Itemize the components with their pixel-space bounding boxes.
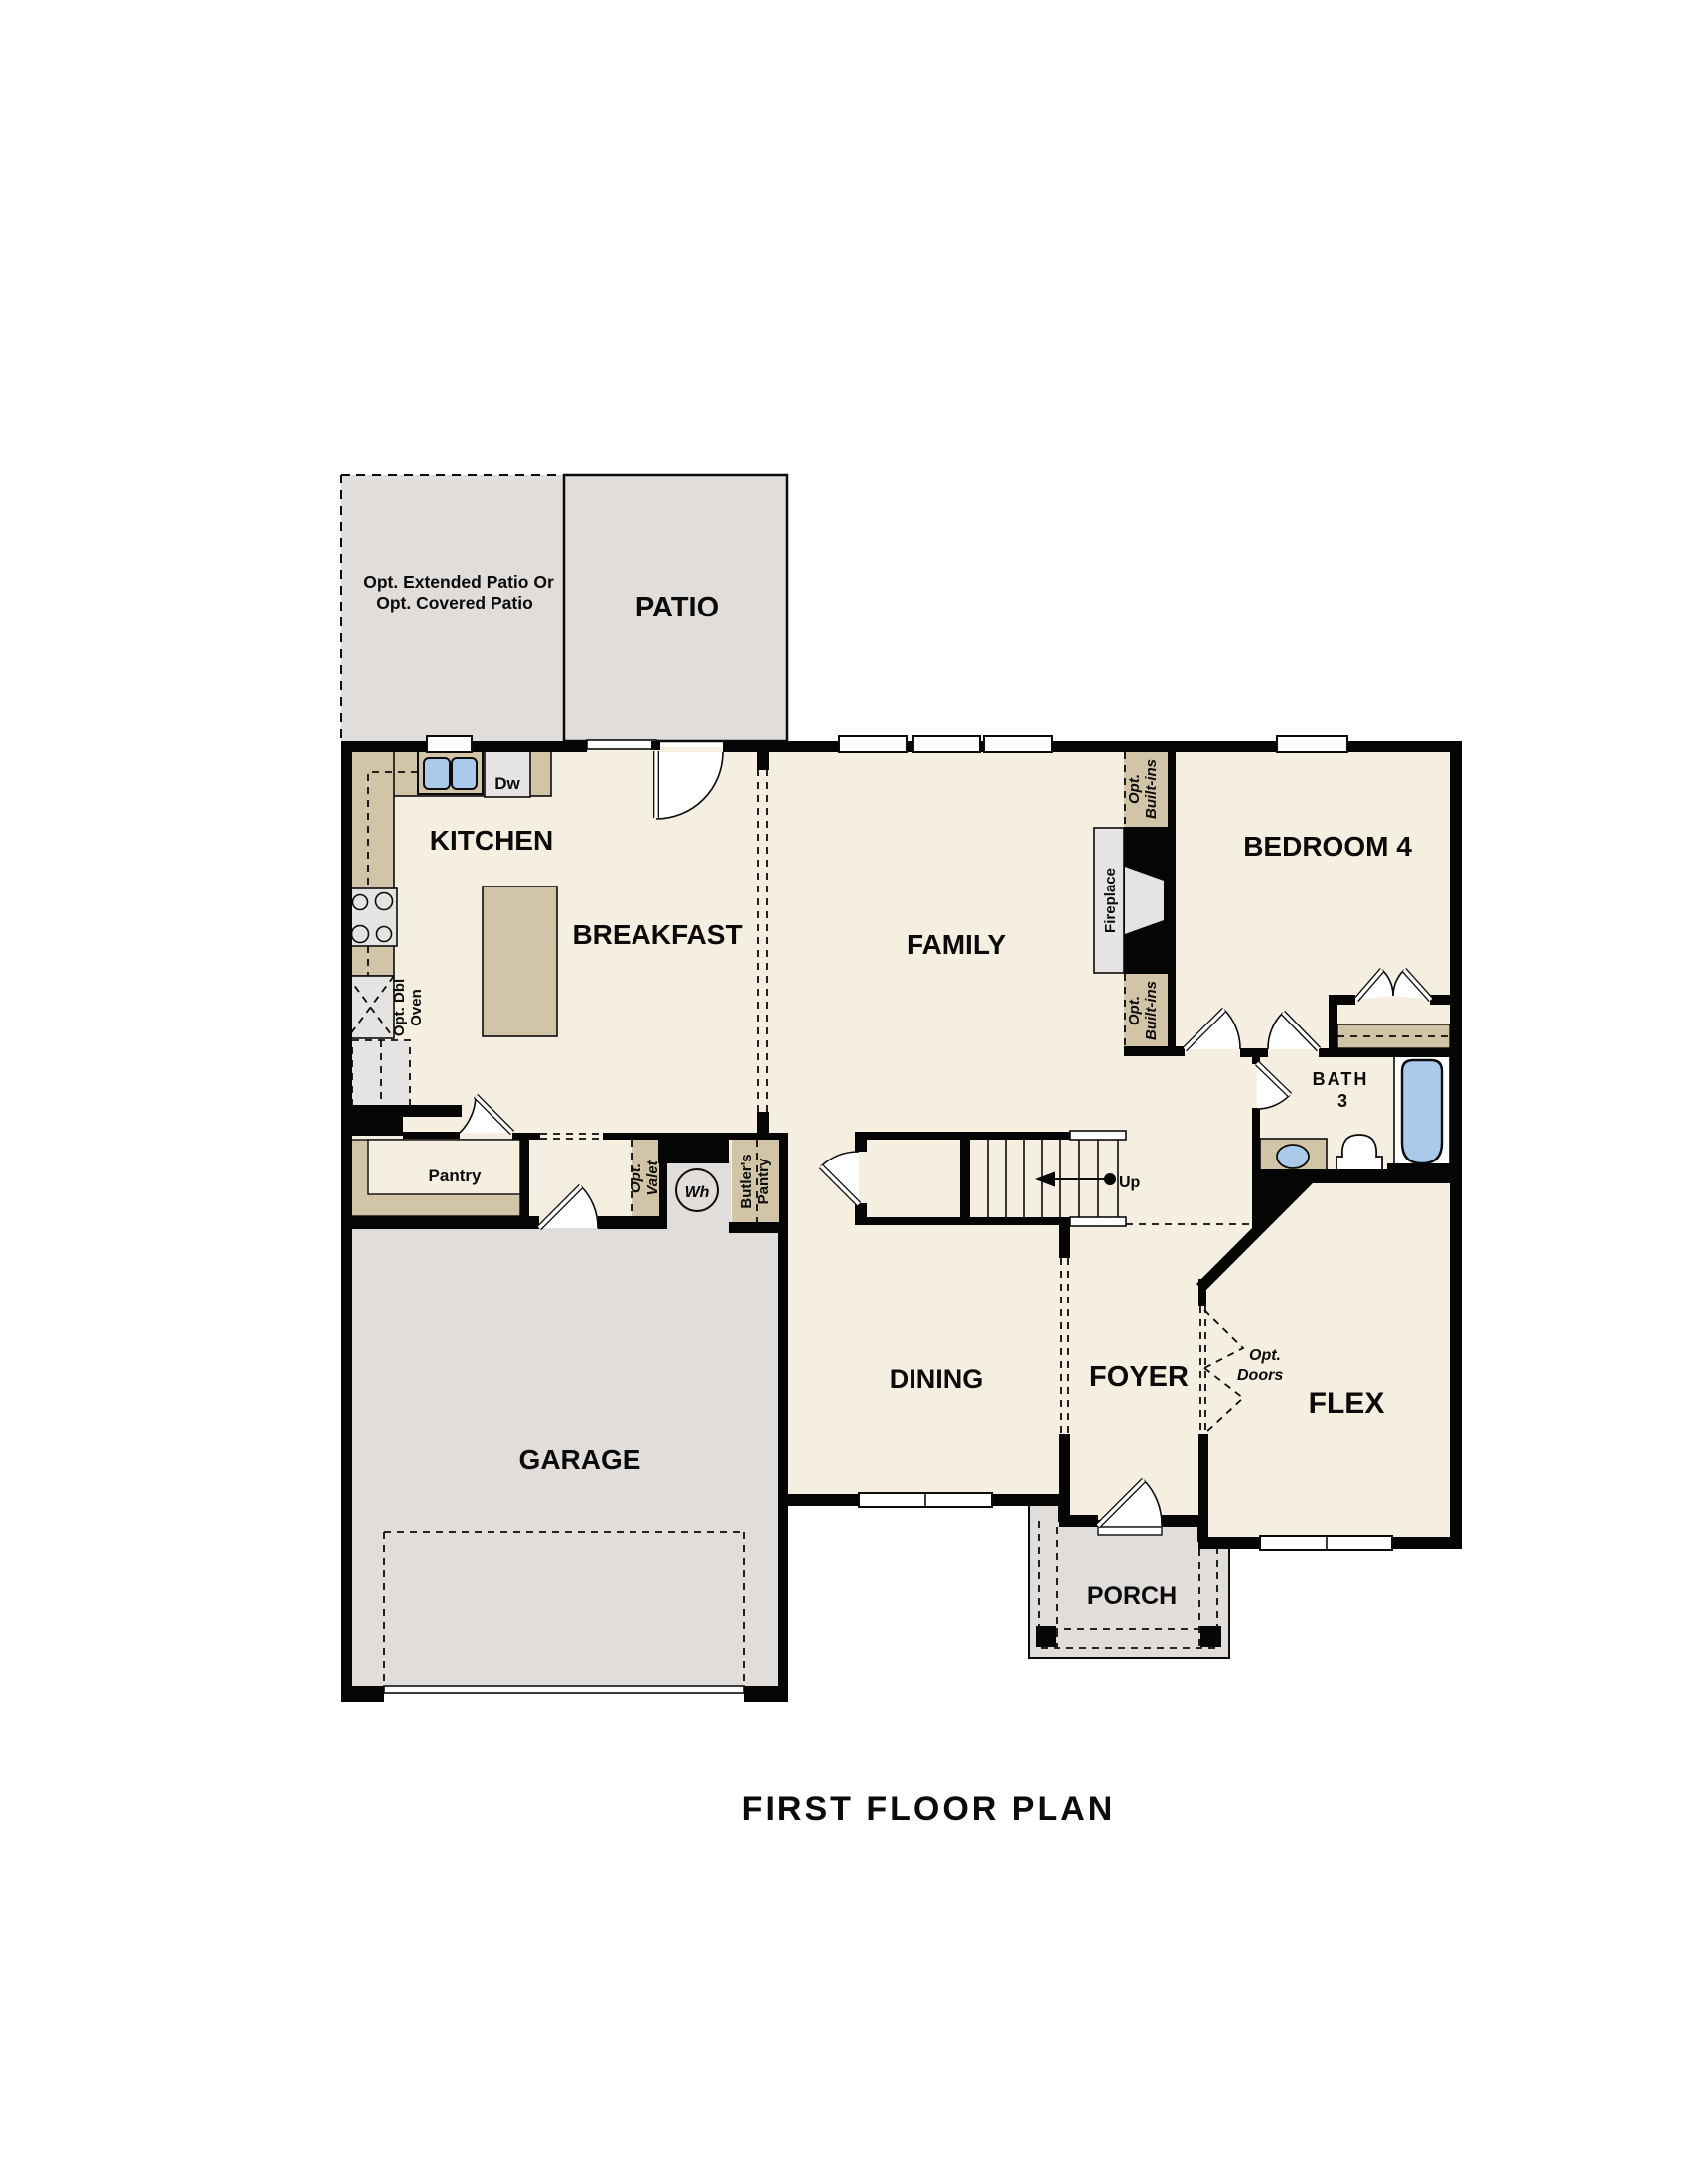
svg-text:FOYER: FOYER	[1089, 1361, 1189, 1393]
svg-text:Valet: Valet	[644, 1160, 661, 1195]
svg-text:Opt.: Opt.	[1126, 996, 1143, 1025]
svg-text:FLEX: FLEX	[1309, 1387, 1385, 1420]
svg-text:Opt.: Opt.	[1249, 1347, 1281, 1364]
svg-text:GARAGE: GARAGE	[519, 1444, 641, 1475]
svg-text:FAMILY: FAMILY	[907, 929, 1006, 960]
svg-text:Dw: Dw	[494, 774, 520, 793]
svg-text:KITCHEN: KITCHEN	[430, 825, 553, 856]
svg-text:Oven: Oven	[408, 989, 425, 1026]
svg-text:Butler's: Butler's	[738, 1154, 755, 1208]
svg-text:BREAKFAST: BREAKFAST	[572, 919, 742, 950]
svg-text:Wh: Wh	[685, 1184, 710, 1201]
svg-text:Opt. Covered Patio: Opt. Covered Patio	[376, 593, 533, 613]
svg-text:BATH: BATH	[1313, 1069, 1369, 1089]
svg-text:Built-ins: Built-ins	[1143, 981, 1160, 1040]
svg-text:Fireplace: Fireplace	[1102, 868, 1119, 933]
svg-text:Up: Up	[1119, 1174, 1141, 1191]
svg-text:FIRST FLOOR PLAN: FIRST FLOOR PLAN	[742, 1790, 1116, 1828]
svg-text:Opt. Dbl: Opt. Dbl	[391, 979, 408, 1036]
svg-text:Opt.: Opt.	[628, 1163, 644, 1193]
svg-text:Pantry: Pantry	[429, 1166, 482, 1185]
svg-text:Opt. Extended Patio Or: Opt. Extended Patio Or	[363, 572, 554, 592]
svg-text:PORCH: PORCH	[1087, 1582, 1177, 1610]
svg-text:Opt.: Opt.	[1126, 774, 1143, 804]
svg-text:PATIO: PATIO	[635, 592, 719, 623]
svg-text:Pantry: Pantry	[755, 1158, 772, 1204]
svg-text:3: 3	[1337, 1091, 1347, 1111]
svg-text:Doors: Doors	[1237, 1367, 1283, 1384]
svg-text:BEDROOM 4: BEDROOM 4	[1243, 831, 1412, 862]
svg-text:Built-ins: Built-ins	[1143, 759, 1160, 819]
svg-text:DINING: DINING	[890, 1364, 984, 1394]
